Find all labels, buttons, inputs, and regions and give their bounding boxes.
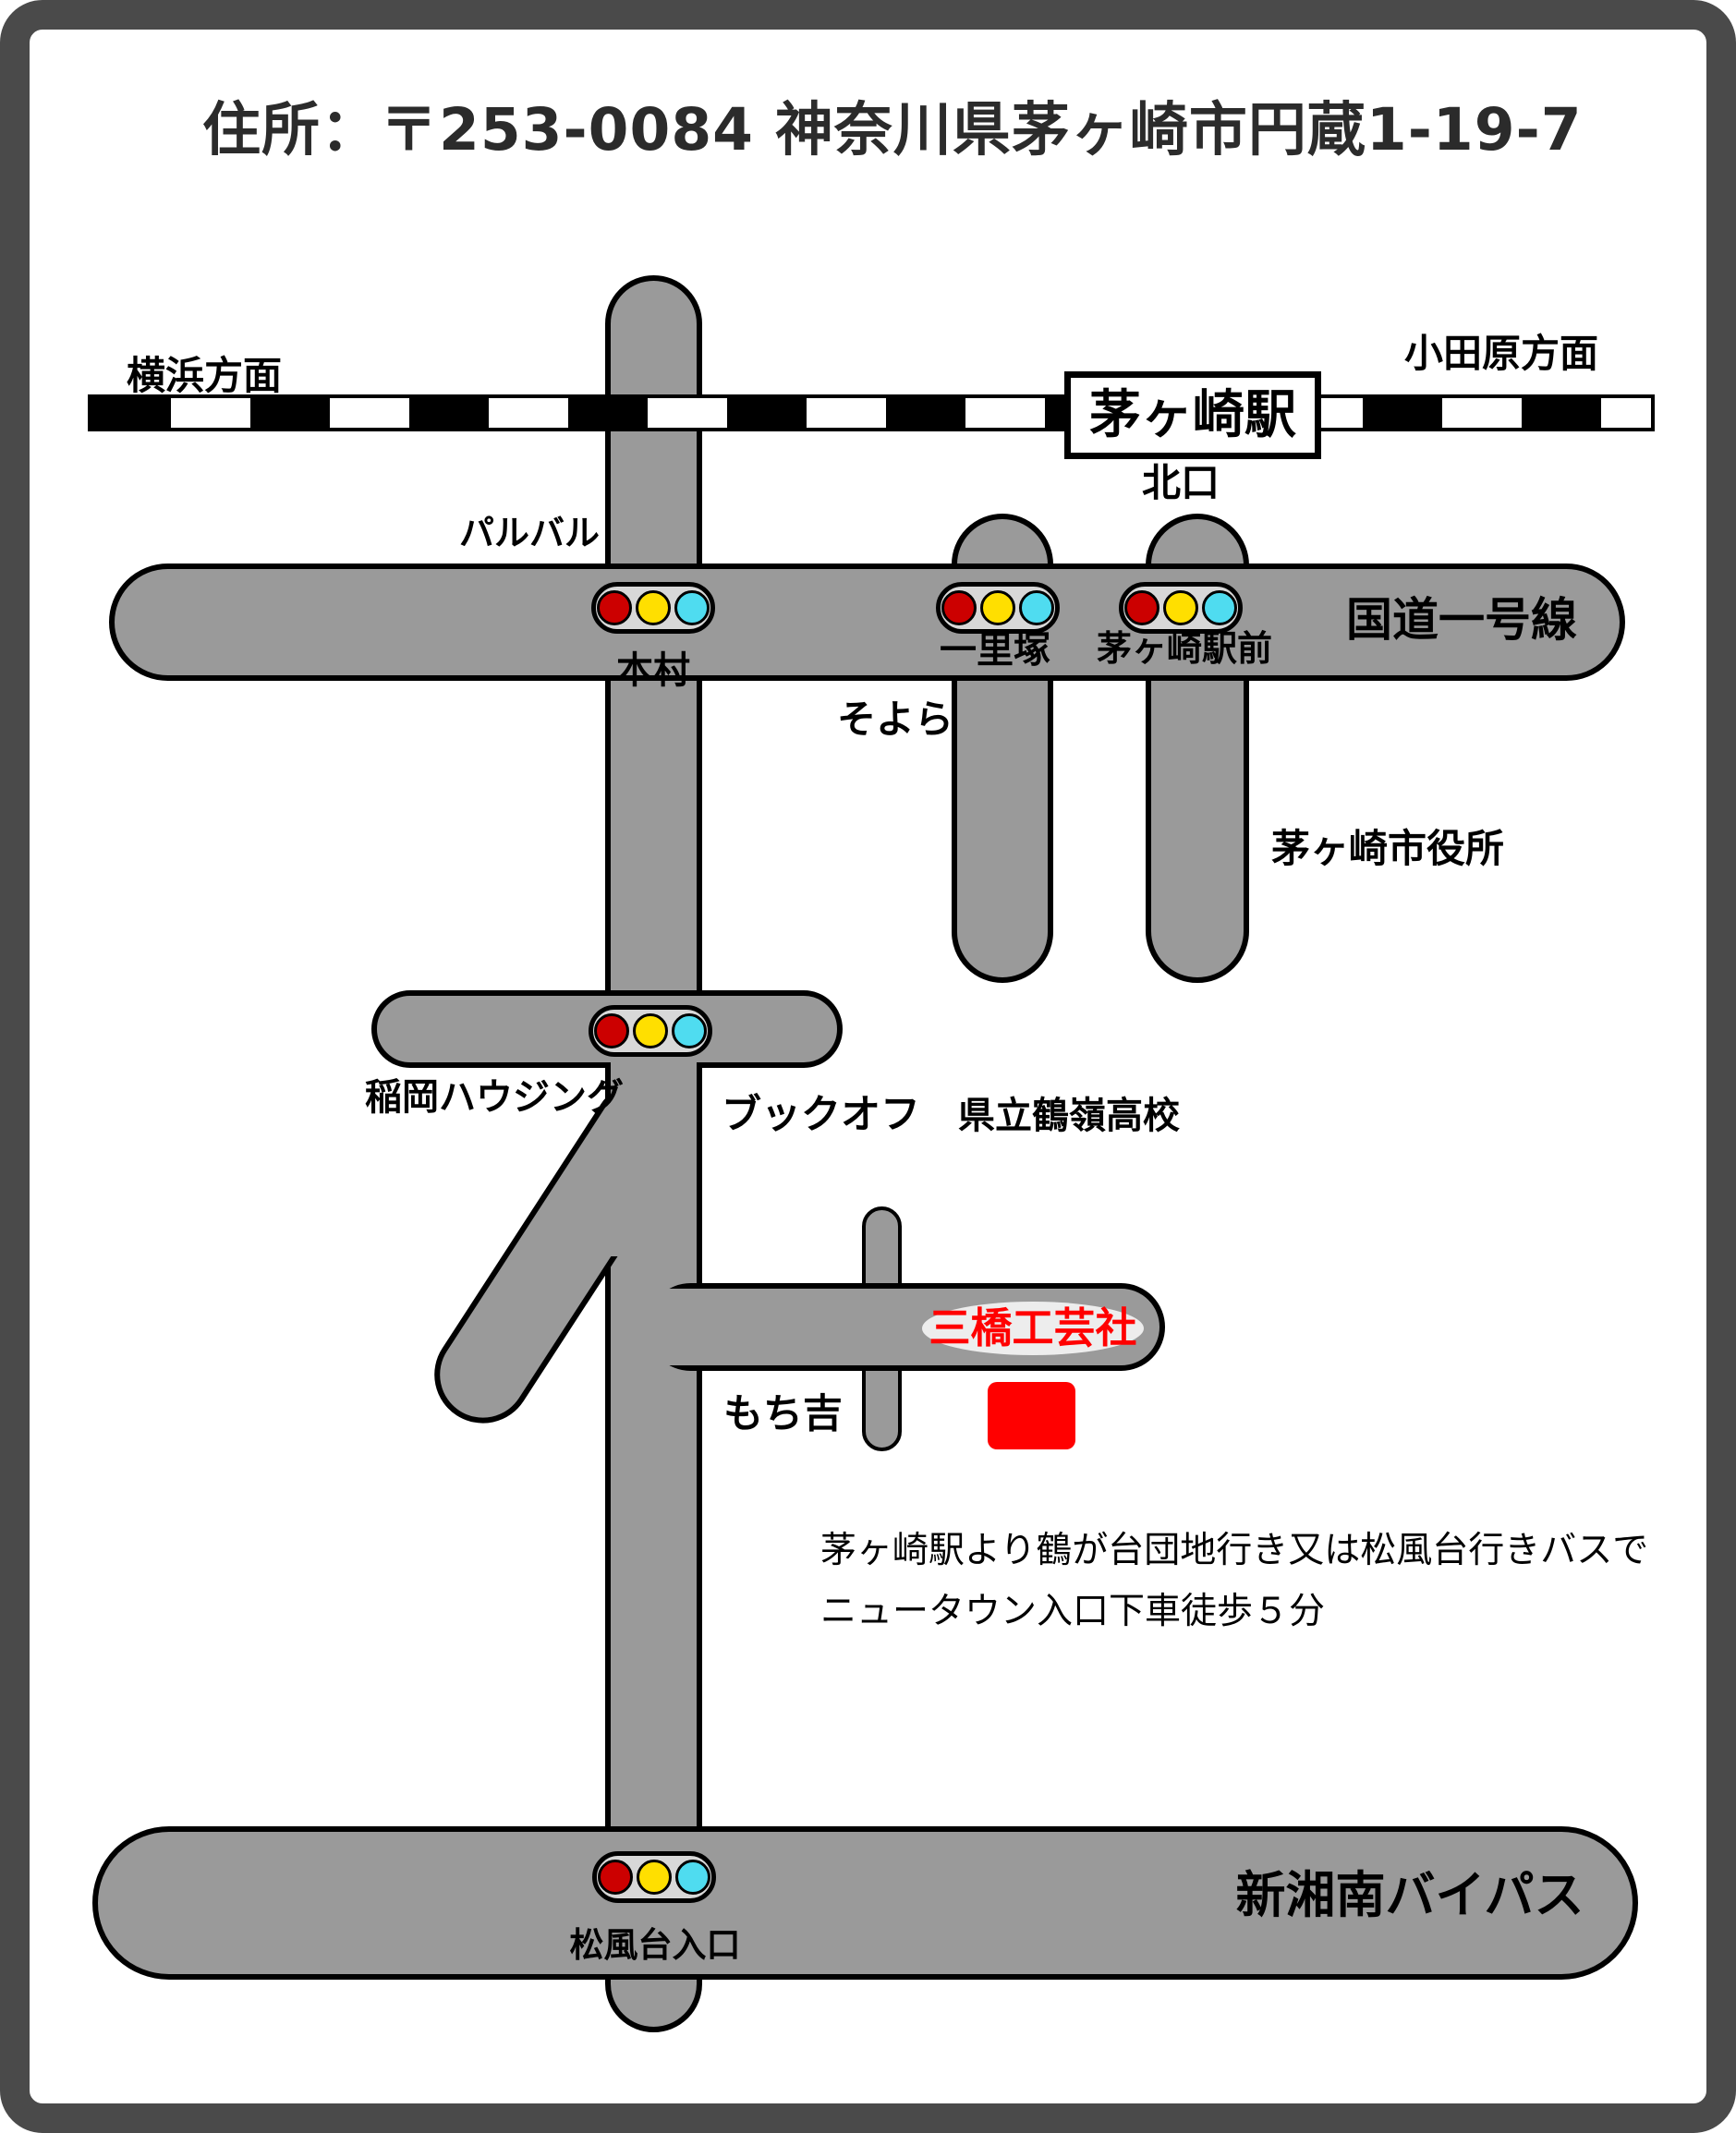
road-label-route1: 国道一号線 (1346, 595, 1577, 646)
page-title: 住所：〒253-0084 神奈川県茅ヶ崎市円蔵1-19-7 (202, 98, 1583, 162)
landmark-parubaru: パルバル (459, 515, 600, 553)
traffic-light-matsukazedai (592, 1851, 716, 1903)
station-box: 茅ヶ崎駅 (1064, 371, 1321, 459)
red-light-icon (594, 1013, 629, 1048)
access-map: 茅ヶ崎駅 住所：〒253-0084 神奈川県茅ヶ崎市円蔵1-19-7 横浜方面 … (0, 0, 1736, 2133)
yellow-light-icon (637, 1860, 672, 1895)
direction-odawara: 小田原方面 (1404, 333, 1598, 375)
landmark-mochikichi: もち吉 (723, 1393, 843, 1436)
landmark-soyora: そよら (837, 698, 953, 741)
green-light-icon (675, 1860, 710, 1895)
green-light-icon (674, 590, 710, 625)
red-light-icon (597, 590, 632, 625)
traffic-light-ekimae (1119, 582, 1243, 634)
station-north-exit: 北口 (1142, 462, 1220, 504)
intersection-inaoka-housing: 稲岡ハウジング (365, 1077, 624, 1118)
green-light-icon (672, 1013, 707, 1048)
traffic-light-honmura (591, 582, 715, 634)
landmark-bookoff: ブックオフ (722, 1094, 920, 1137)
destination-label: 三橋工芸社 (929, 1305, 1136, 1351)
landmark-tsurumine-hs: 県立鶴嶺高校 (958, 1096, 1180, 1136)
road-label-bypass: 新湘南バイパス (1236, 1868, 1584, 1922)
station-name: 茅ヶ崎駅 (1089, 387, 1296, 444)
direction-yokohama: 横浜方面 (127, 355, 282, 397)
landmark-city-hall: 茅ヶ崎市役所 (1271, 828, 1504, 870)
yellow-light-icon (633, 1013, 668, 1048)
intersection-chigasaki-ekimae: 茅ヶ崎駅前 (1097, 630, 1272, 669)
green-light-icon (1019, 590, 1054, 625)
yellow-light-icon (636, 590, 671, 625)
yellow-light-icon (980, 590, 1015, 625)
red-light-icon (1124, 590, 1159, 625)
railway-line (88, 394, 1655, 431)
intersection-matsukazedai: 松風台入口 (570, 1927, 741, 1965)
red-light-icon (598, 1860, 633, 1895)
destination-building (988, 1382, 1075, 1449)
traffic-light-inaoka (589, 1005, 712, 1057)
yellow-light-icon (1163, 590, 1198, 625)
junction-patch (611, 1289, 697, 1365)
map-border-frame (0, 0, 1736, 2133)
junction-patch (867, 1289, 899, 1365)
intersection-honmura: 本村 (616, 650, 690, 691)
intersection-ichirizuka: 一里塚 (940, 630, 1050, 671)
bus-directions-line1: 茅ヶ崎駅より鶴が台団地行き又は松風台行きバスで (820, 1532, 1648, 1571)
green-light-icon (1202, 590, 1237, 625)
red-light-icon (941, 590, 977, 625)
bus-directions-line2: ニュータウン入口下車徒歩５分 (820, 1593, 1325, 1632)
traffic-light-ichirizuka (936, 582, 1060, 634)
